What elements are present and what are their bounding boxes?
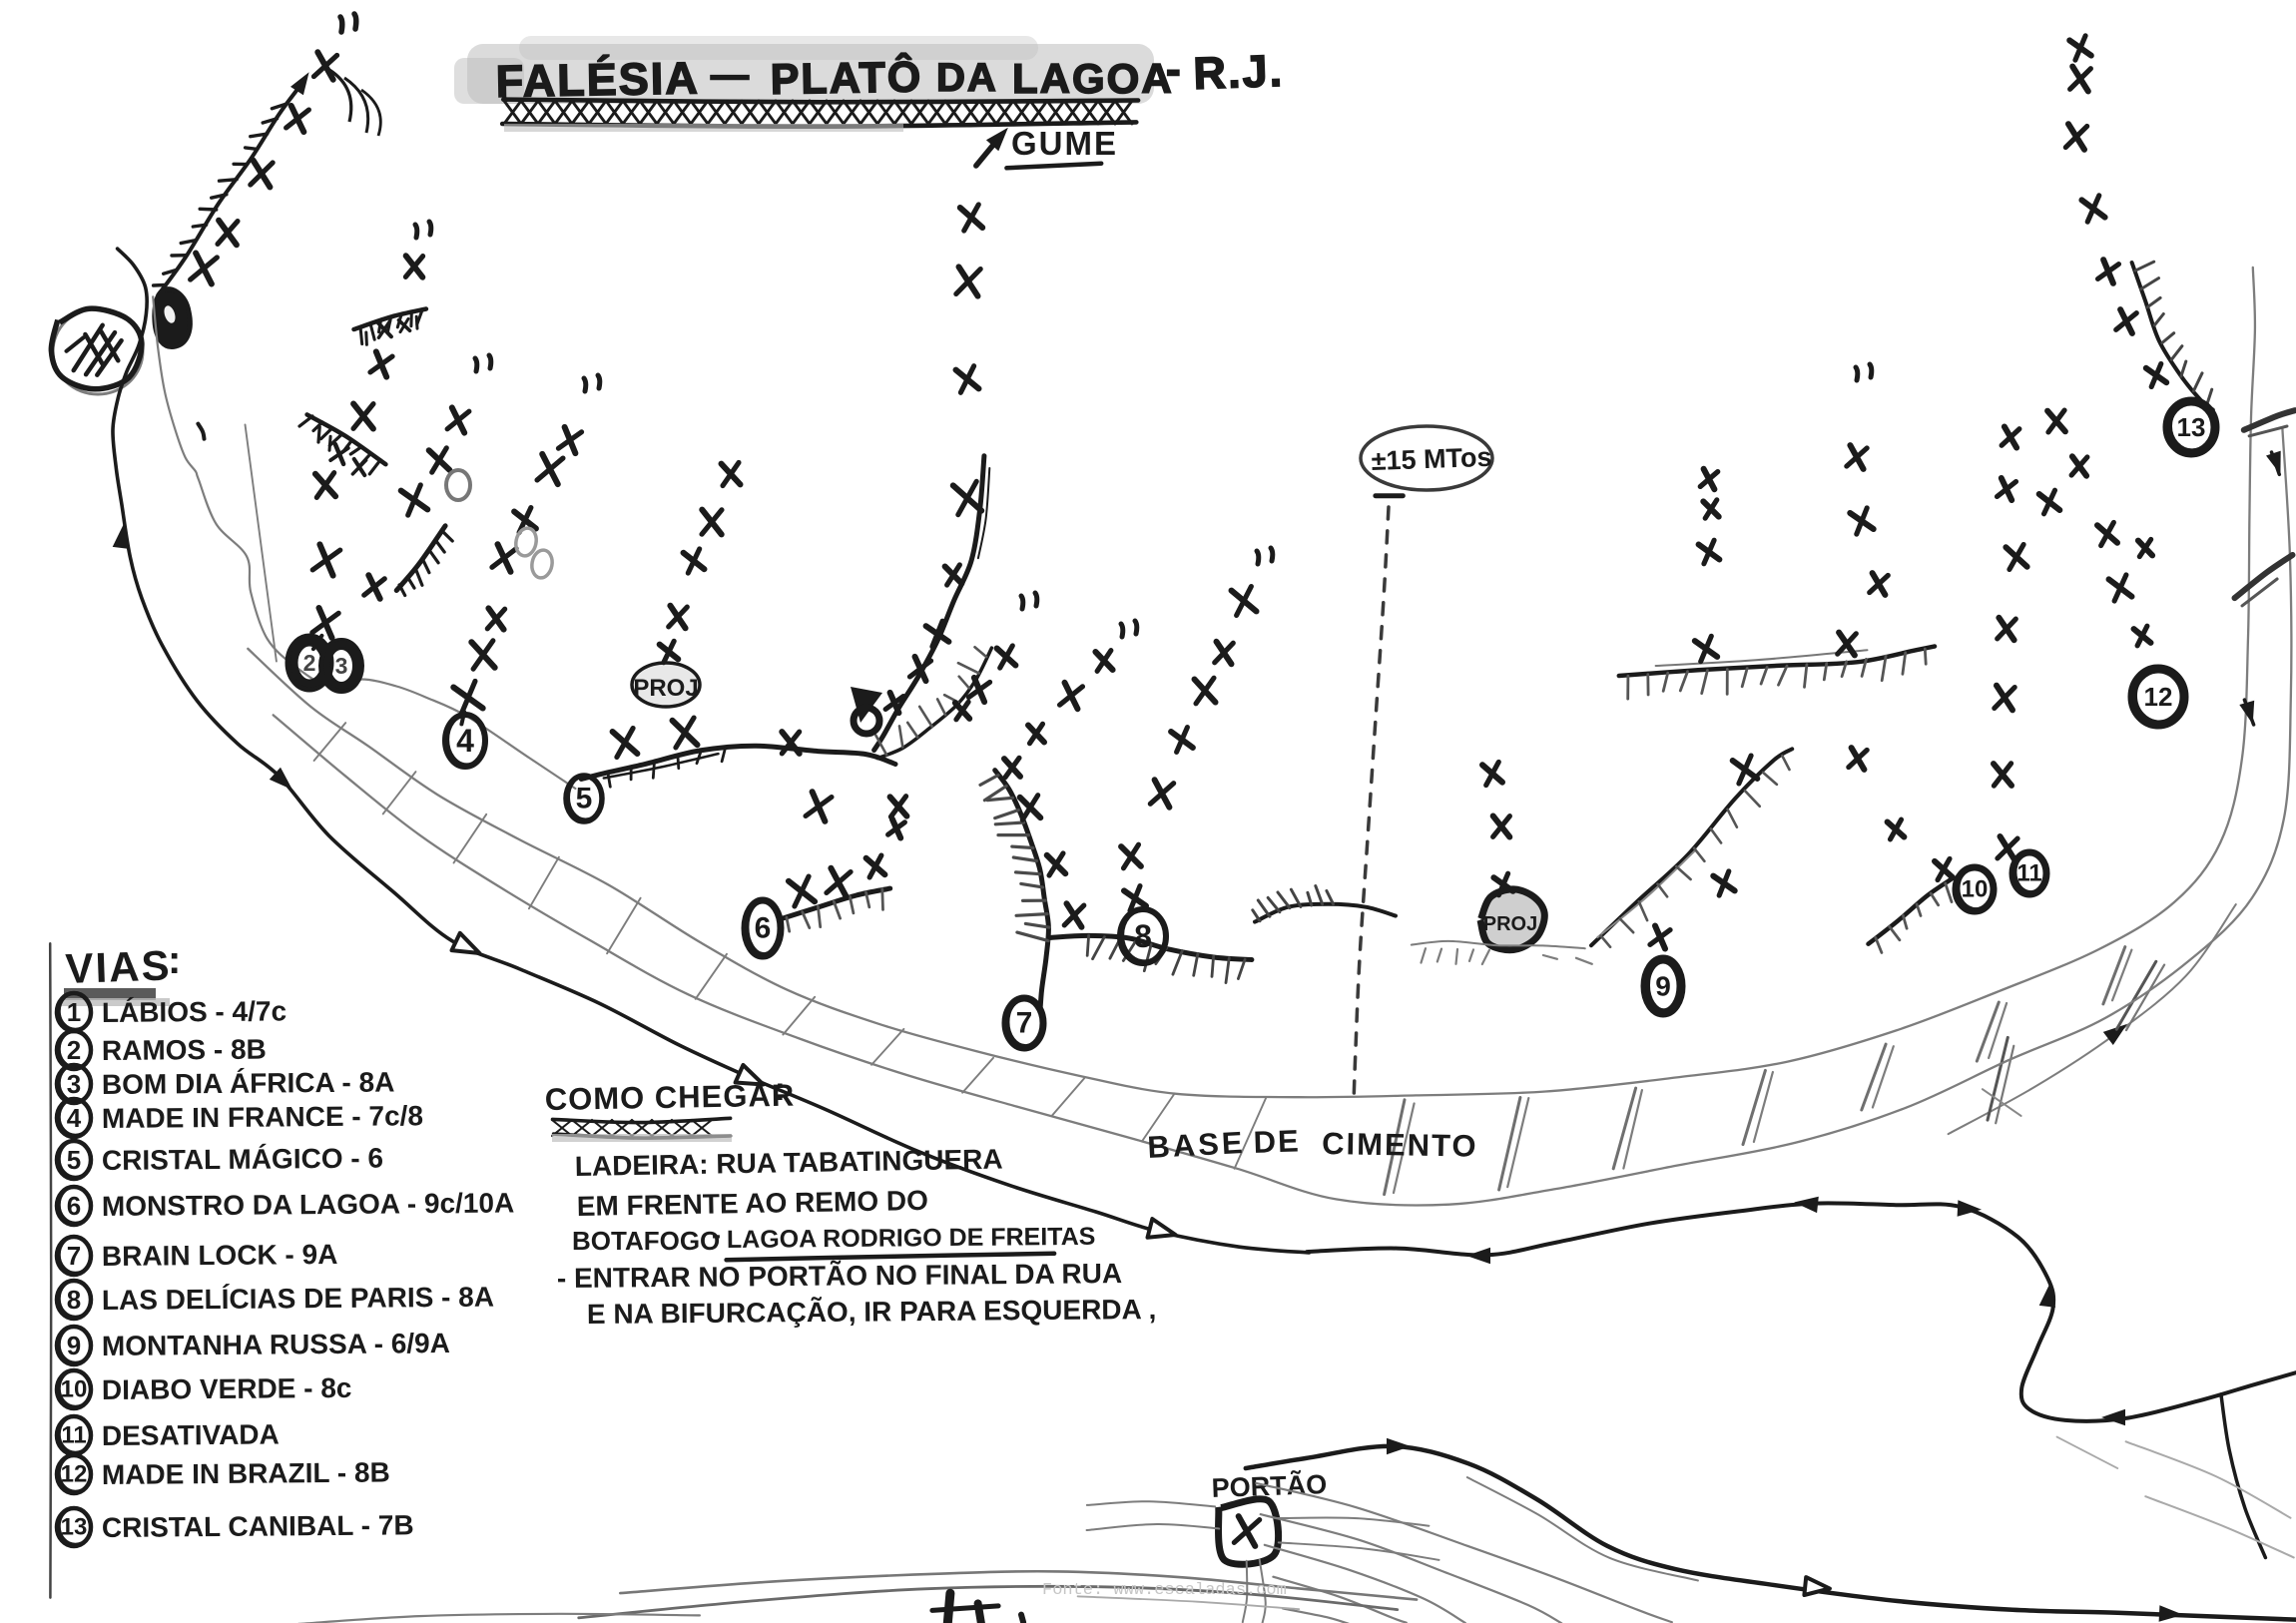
svg-text:2: 2 <box>303 650 316 676</box>
svg-text:6: 6 <box>67 1191 81 1221</box>
svg-text:8: 8 <box>1134 918 1152 954</box>
svg-text:5: 5 <box>67 1145 81 1175</box>
svg-text:BASE: BASE <box>1147 1125 1247 1165</box>
svg-text:BOTAFOGO: BOTAFOGO <box>572 1226 720 1256</box>
svg-text:6: 6 <box>755 912 772 945</box>
svg-text:DA: DA <box>936 56 998 100</box>
svg-text:R.J.: R.J. <box>1193 45 1285 99</box>
svg-text:9: 9 <box>1655 971 1671 1002</box>
svg-text:12: 12 <box>61 1461 88 1488</box>
svg-text:MONTANHA RUSSA - 6/9A: MONTANHA RUSSA - 6/9A <box>102 1328 450 1361</box>
svg-text::: : <box>168 938 181 982</box>
svg-text:E NA BIFURCAÇÃO, IR PARA ESQUE: E NA BIFURCAÇÃO, IR PARA ESQUERDA , <box>587 1294 1157 1330</box>
svg-text:11: 11 <box>2016 860 2041 887</box>
svg-text:LAGOA: LAGOA <box>1012 55 1174 102</box>
svg-text:3: 3 <box>67 1069 81 1099</box>
svg-text:DESATIVADA: DESATIVADA <box>102 1418 280 1451</box>
svg-text:EM FRENTE AO REMO DO: EM FRENTE AO REMO DO <box>577 1185 929 1222</box>
svg-text:5: 5 <box>576 783 593 815</box>
svg-text:8: 8 <box>67 1285 81 1315</box>
svg-text:BOM DIA ÁFRICA - 8A: BOM DIA ÁFRICA - 8A <box>102 1066 395 1100</box>
svg-text:9: 9 <box>67 1331 81 1360</box>
svg-text:2: 2 <box>67 1035 81 1065</box>
svg-text:—: — <box>711 55 749 97</box>
svg-text:COMO CHEGAR: COMO CHEGAR <box>545 1078 796 1117</box>
svg-text:PLATÔ: PLATÔ <box>770 52 922 104</box>
svg-text::: : <box>775 1071 786 1107</box>
svg-text:MONSTRO DA LAGOA - 9c/10A: MONSTRO DA LAGOA - 9c/10A <box>102 1187 515 1222</box>
svg-text:±15 MTos: ±15 MTos <box>1371 442 1492 476</box>
svg-text:LAGOA RODRIGO DE FREITAS: LAGOA RODRIGO DE FREITAS <box>727 1223 1096 1254</box>
svg-text:BRAIN LOCK - 9A: BRAIN LOCK - 9A <box>102 1239 338 1272</box>
svg-text:10: 10 <box>61 1376 88 1403</box>
svg-text:11: 11 <box>61 1422 86 1449</box>
svg-text:LÁBIOS - 4/7c: LÁBIOS - 4/7c <box>102 995 287 1028</box>
svg-text:Fonte: www.escaladas.com: Fonte: www.escaladas.com <box>1042 1581 1287 1600</box>
svg-text:CRISTAL MÁGICO - 6: CRISTAL MÁGICO - 6 <box>102 1143 383 1176</box>
svg-text:VIAS: VIAS <box>65 941 173 992</box>
svg-text:4: 4 <box>456 723 474 759</box>
svg-text:7: 7 <box>1016 1007 1033 1040</box>
svg-text:13: 13 <box>2177 412 2206 442</box>
svg-text:CIMENTO: CIMENTO <box>1322 1126 1478 1164</box>
svg-text:-: - <box>1166 45 1181 94</box>
svg-text:DIABO VERDE - 8c: DIABO VERDE - 8c <box>102 1372 352 1405</box>
svg-text:PROJ: PROJ <box>1483 913 1537 935</box>
svg-text:7: 7 <box>67 1241 81 1271</box>
svg-text:MADE IN FRANCE - 7c/8: MADE IN FRANCE - 7c/8 <box>102 1100 423 1134</box>
svg-text:12: 12 <box>2144 682 2173 712</box>
svg-text:RAMOS - 8B: RAMOS - 8B <box>102 1034 267 1066</box>
svg-text:3: 3 <box>335 653 348 679</box>
svg-text:LAS DELÍCIAS DE PARIS - 8A: LAS DELÍCIAS DE PARIS - 8A <box>102 1282 494 1316</box>
svg-text:- ENTRAR NO PORTÃO NO FINAL DA: - ENTRAR NO PORTÃO NO FINAL DA RUA <box>557 1258 1122 1294</box>
svg-text:-: - <box>712 1220 721 1250</box>
svg-text:MADE IN BRAZIL - 8B: MADE IN BRAZIL - 8B <box>102 1456 390 1490</box>
svg-text:4: 4 <box>67 1103 82 1133</box>
svg-text:DE: DE <box>1253 1123 1301 1160</box>
svg-text:PROJ: PROJ <box>633 675 698 702</box>
svg-text:CRISTAL CANIBAL - 7B: CRISTAL CANIBAL - 7B <box>102 1509 414 1543</box>
svg-text:GUME: GUME <box>1011 125 1118 162</box>
svg-text:1: 1 <box>67 997 81 1027</box>
svg-text:10: 10 <box>1962 876 1989 903</box>
svg-text:13: 13 <box>61 1514 88 1541</box>
